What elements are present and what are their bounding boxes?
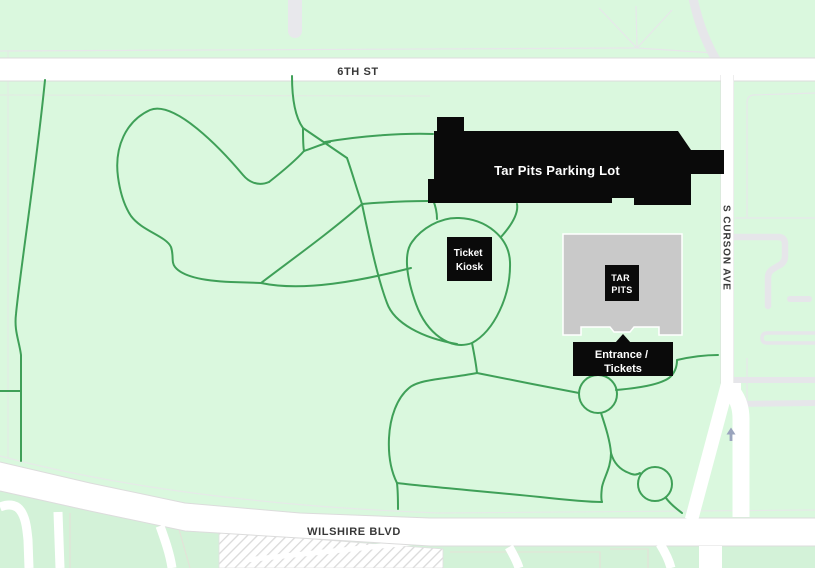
- wilshire-label: WILSHIRE BLVD: [307, 526, 401, 538]
- gray-bar: [288, 0, 302, 38]
- entrance-label-line2: Tickets: [604, 363, 642, 375]
- curson-label: S CURSON AVE: [721, 205, 732, 291]
- map-canvas: 6TH ST WILSHIRE BLVD S CURSON AVE Tar Pi…: [0, 0, 815, 568]
- tar-pits-label-line1: TAR: [611, 273, 630, 283]
- sixth-st-road: [0, 58, 815, 81]
- ticket-kiosk-label-line1: Ticket: [454, 248, 483, 259]
- ticket-kiosk-marker: [447, 237, 492, 281]
- parking-lot-label: Tar Pits Parking Lot: [494, 163, 620, 178]
- tar-pits-marker: [605, 265, 639, 301]
- ticket-kiosk-label-line2: Kiosk: [456, 262, 484, 273]
- trail: [397, 483, 398, 509]
- tar-pits-map: 6TH ST WILSHIRE BLVD S CURSON AVE Tar Pi…: [0, 0, 815, 568]
- sixth-st-label: 6TH ST: [337, 66, 379, 78]
- entrance-label-line1: Entrance /: [595, 349, 648, 361]
- tar-pits-label-line2: PITS: [611, 285, 632, 295]
